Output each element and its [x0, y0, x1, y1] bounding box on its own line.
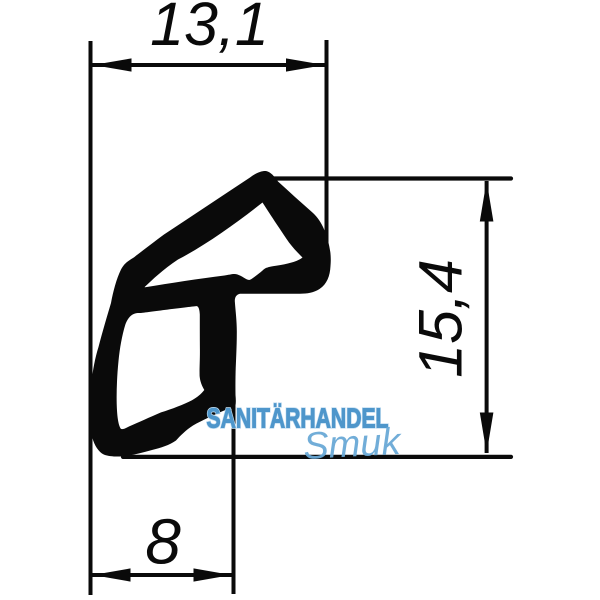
svg-text:13,1: 13,1: [150, 0, 269, 58]
svg-text:15,4: 15,4: [407, 259, 475, 378]
svg-text:8: 8: [145, 506, 181, 578]
svg-text:Smuk: Smuk: [302, 421, 403, 468]
